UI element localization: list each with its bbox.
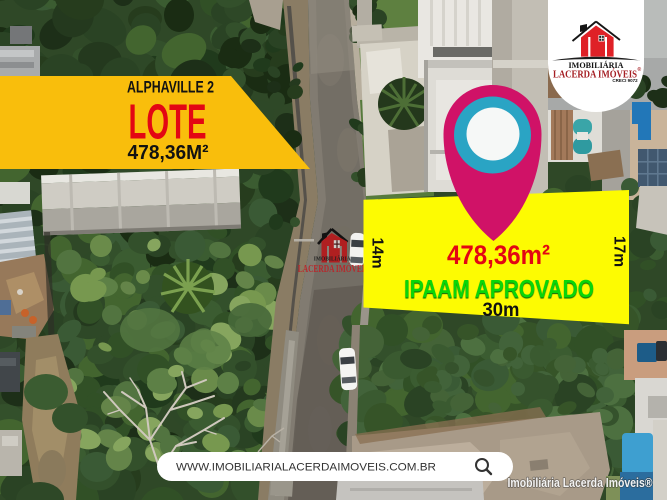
svg-text:30m: 30m [483,300,520,321]
svg-text:478,36M²: 478,36M² [128,142,209,164]
svg-text:IMOBILIÁRIA: IMOBILIÁRIA [314,255,351,263]
svg-text:17m: 17m [610,236,627,267]
svg-text:14m: 14m [368,237,385,268]
svg-text:Imobiliária Lacerda Imóveis®: Imobiliária Lacerda Imóveis® [508,475,653,490]
svg-text:CRECI 9072: CRECI 9072 [612,78,638,83]
svg-text:®: ® [638,66,642,73]
svg-text:WWW.IMOBILIARIALACERDAIMOVEIS.: WWW.IMOBILIARIALACERDAIMOVEIS.COM.BR [176,462,436,474]
svg-text:478,36m²: 478,36m² [447,240,550,270]
